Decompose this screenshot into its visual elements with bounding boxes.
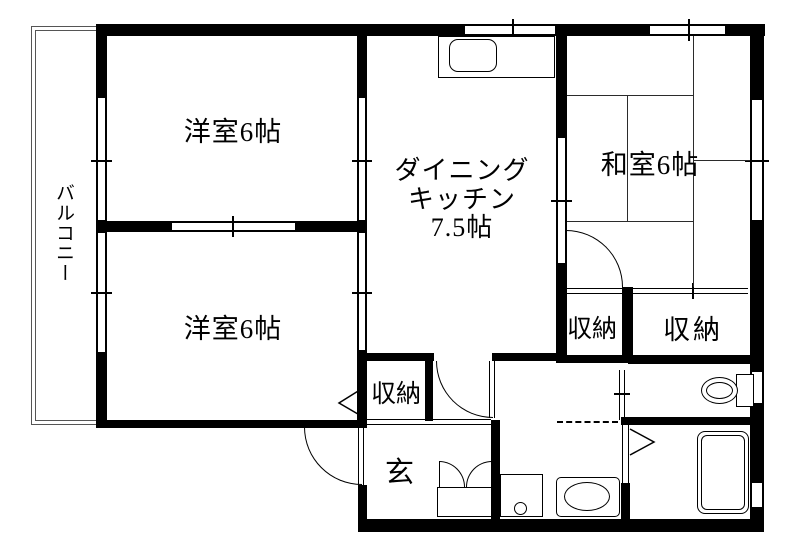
wall-east-a: [750, 24, 764, 100]
front-door-swing-arc: [304, 427, 362, 485]
bathtub-inner: [701, 435, 745, 510]
wall-room-divider-b: [295, 221, 357, 232]
bath-folding-door: [622, 425, 629, 483]
wall-east-c: [750, 403, 764, 483]
wall-west-c: [96, 352, 107, 428]
tatami-line: [567, 95, 693, 96]
wall-room-divider-a: [96, 221, 172, 232]
toilet-tank: [736, 374, 754, 407]
entrance-label: 玄: [379, 449, 421, 491]
wall-south-left: [96, 420, 360, 428]
hall-door-swing-arc: [436, 361, 493, 418]
window-top-kitchen: [465, 24, 555, 36]
shoe-cabinet: [437, 487, 492, 517]
wall-dk-bottom-b: [492, 353, 556, 361]
sliding-door-top-room-dk: [357, 98, 367, 220]
wall-toilet-bottom: [621, 417, 750, 425]
washing-machine-drain: [514, 502, 527, 515]
bath-folding-door-icon: [630, 429, 654, 455]
wall-mid-b: [357, 220, 367, 233]
closet-hall-label: 収納: [360, 374, 432, 410]
kitchen-sink: [449, 39, 497, 72]
window-west-room-bottom: [96, 233, 107, 352]
wall-dk-bottom-a: [357, 353, 434, 361]
wall-closet-right-bottom: [628, 355, 750, 364]
closet-japanese-right-label: 収納: [645, 308, 741, 347]
floorplan: バルコニー 洋室6帖 洋室6帖 ダイニング キッチン 7.5帖 和室6帖 収納 …: [0, 0, 800, 547]
wall-top-b: [555, 24, 650, 36]
window-west-room-top: [96, 98, 107, 220]
wash-basin: [564, 482, 610, 511]
wall-west-a: [96, 24, 107, 98]
closet-left-sliding-door: [567, 288, 622, 294]
sliding-door-between-western-rooms: [170, 221, 295, 232]
closet-japanese-left-label: 収納: [556, 309, 628, 345]
closet-right-sliding-door: [632, 288, 748, 294]
toilet-sliding-door: [619, 370, 625, 420]
toilet-bowl-inner: [706, 382, 733, 399]
wall-bath-divider-low: [621, 483, 630, 519]
wall-mid-a: [357, 24, 367, 98]
tatami-line: [567, 221, 693, 222]
wall-east-b: [750, 220, 764, 372]
dining-kitchen-label-line3: 7.5帖: [372, 207, 552, 244]
wall-entrance-washroom-divider: [491, 420, 500, 531]
japanese-room-label: 和室6帖: [568, 143, 732, 182]
wall-dk-japanese-a: [556, 36, 567, 138]
wall-south-protrusion: [358, 519, 764, 532]
wall-top-a: [96, 24, 465, 36]
shoe-cabinet-door-left-arc: [439, 461, 465, 487]
window-top-japanese-room: [650, 24, 725, 36]
sliding-door-bottom-room-dk: [357, 233, 367, 350]
shoe-cabinet-door-right-arc: [466, 461, 492, 487]
window-east-bath: [750, 483, 764, 507]
wall-closet-left-bottom: [556, 355, 633, 363]
japanese-room-door-swing-arc: [566, 230, 623, 287]
balcony-label: バルコニー: [50, 170, 77, 295]
washroom-accordion-door: [557, 421, 618, 427]
window-east-japanese-room: [750, 100, 764, 220]
western-room-top-label: 洋室6帖: [131, 110, 335, 149]
western-room-bottom-label: 洋室6帖: [131, 307, 335, 346]
wall-protrusion-west: [358, 485, 367, 531]
